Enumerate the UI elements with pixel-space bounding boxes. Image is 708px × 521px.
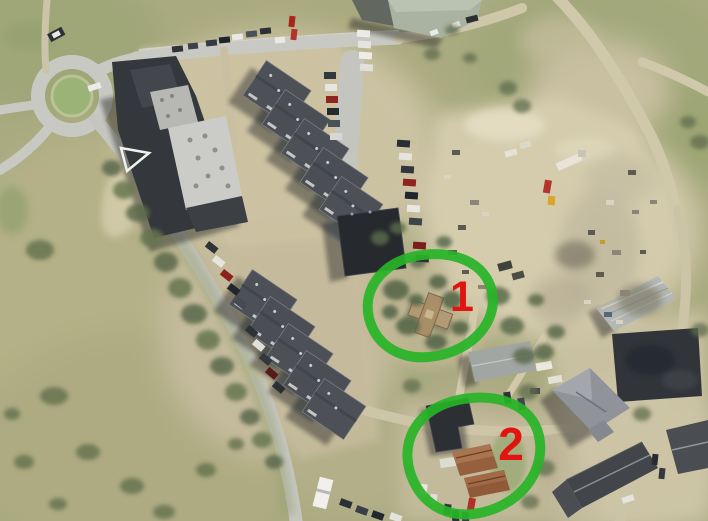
car: [275, 36, 286, 43]
car: [206, 39, 218, 46]
car: [219, 36, 231, 43]
car: [360, 64, 373, 72]
car: [246, 30, 258, 37]
car: [397, 140, 410, 148]
car: [325, 84, 337, 91]
dark-yard-texture: [625, 345, 675, 375]
car: [401, 166, 414, 174]
dark-yard-texture-2: [662, 370, 698, 390]
car: [405, 192, 418, 200]
car: [658, 468, 665, 480]
car: [409, 218, 422, 226]
aerial-map: 1 2: [0, 0, 708, 521]
car: [357, 30, 370, 38]
marker-label-1: 1: [450, 273, 474, 321]
car: [330, 133, 342, 140]
car: [399, 153, 412, 161]
car: [260, 27, 272, 34]
car: [327, 108, 339, 115]
car: [358, 41, 371, 49]
aerial-photo-canvas: 1 2: [0, 0, 708, 521]
red-car: [288, 16, 295, 28]
car: [172, 45, 184, 52]
car: [326, 96, 338, 103]
truck-cab: [578, 150, 586, 157]
car: [359, 52, 372, 60]
roundabout-arm-west: [0, 104, 40, 110]
yellow-debris: [600, 240, 605, 244]
yellow-machine: [548, 196, 556, 206]
car: [407, 205, 420, 213]
roundabout-island: [52, 76, 92, 116]
car: [328, 120, 340, 127]
car: [188, 42, 199, 49]
red-car: [290, 29, 297, 41]
blue-debris: [604, 312, 612, 317]
marker-label-2: 2: [498, 418, 524, 470]
roundabout-arm-north: [45, 0, 47, 70]
car: [232, 33, 244, 40]
car: [324, 72, 336, 79]
car: [651, 454, 658, 466]
car: [403, 179, 416, 187]
car: [413, 242, 426, 250]
